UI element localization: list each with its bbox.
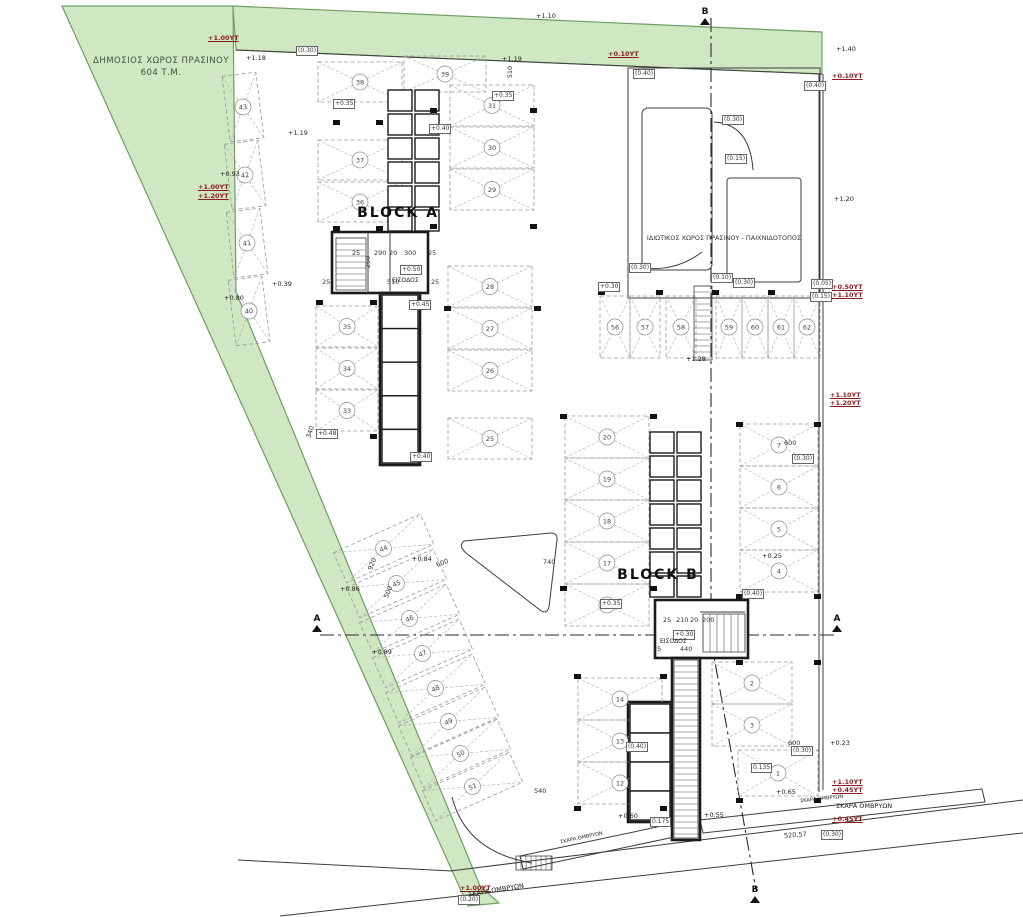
svg-text:13: 13 <box>616 737 624 745</box>
svg-text:57: 57 <box>641 323 649 331</box>
svg-text:1: 1 <box>776 769 780 777</box>
svg-text:61: 61 <box>777 323 785 331</box>
svg-text:7: 7 <box>777 441 781 449</box>
svg-text:20: 20 <box>603 433 611 441</box>
svg-text:17: 17 <box>603 559 611 567</box>
block-a-label: BLOCK A <box>352 205 444 221</box>
svg-text:60: 60 <box>751 323 759 331</box>
parking-stall: 1 <box>738 750 818 796</box>
plan-canvas: 3837363534333931302928272625434241404445… <box>0 0 1023 917</box>
parking-stall: 39 <box>404 56 486 92</box>
parking-stall: 27 <box>448 308 532 349</box>
parking-stall: 2 <box>712 662 792 704</box>
svg-text:14: 14 <box>616 695 624 703</box>
storage-cell-row <box>650 504 701 525</box>
parking-stall: 3 <box>712 704 792 746</box>
stair-ramp-hatch <box>694 286 712 360</box>
storage-cell-row <box>388 114 439 135</box>
public-green-label-line2: 604 Τ.Μ. <box>58 68 264 78</box>
parking-stall: 56 <box>600 296 630 358</box>
svg-text:58: 58 <box>677 323 685 331</box>
svg-text:31: 31 <box>488 102 496 110</box>
svg-text:6: 6 <box>777 483 781 491</box>
svg-text:59: 59 <box>725 323 733 331</box>
svg-text:38: 38 <box>356 78 364 86</box>
svg-text:16: 16 <box>603 601 611 609</box>
svg-text:37: 37 <box>356 156 364 164</box>
svg-text:4: 4 <box>777 567 781 575</box>
parking-stall: 31 <box>450 85 534 126</box>
plot-boundary <box>236 50 823 792</box>
svg-text:28: 28 <box>486 283 494 291</box>
svg-text:33: 33 <box>343 407 351 415</box>
svg-text:41: 41 <box>242 239 251 248</box>
parking-stall: 34 <box>316 348 378 389</box>
storage-cell-row <box>388 162 439 183</box>
parking-stall: 59 <box>716 296 742 358</box>
parking-stall: 26 <box>448 350 532 391</box>
parking-stall: 4 <box>740 550 818 592</box>
svg-text:25: 25 <box>486 435 494 443</box>
svg-text:56: 56 <box>611 323 619 331</box>
parking-stall: 28 <box>448 266 532 307</box>
site-plan: 3837363534333931302928272625434241404445… <box>0 0 1023 917</box>
parking-stall: 18 <box>565 500 649 542</box>
storm-grate-label: ΣΚΑΡΑ ΟΜΒΡΥΩΝ <box>836 802 892 810</box>
svg-text:29: 29 <box>488 186 496 194</box>
storage-cell-row <box>388 90 439 111</box>
svg-text:12: 12 <box>616 779 624 787</box>
parking-stall: 16 <box>565 584 649 626</box>
svg-text:42: 42 <box>240 171 249 180</box>
block-b-entrance-label: ΕΙΣΟΔΟΣ <box>660 638 687 645</box>
public-green-label-line1: ΔΗΜΟΣΙΟΣ ΧΩΡΟΣ ΠΡΑΣΙΝΟΥ <box>58 56 264 66</box>
parking-stall: 57 <box>630 296 660 358</box>
svg-text:40: 40 <box>244 307 253 316</box>
storage-cell-row <box>650 456 701 477</box>
parking-stall: 25 <box>448 418 532 459</box>
traffic-island <box>461 533 557 612</box>
storage-cell-row <box>388 186 439 207</box>
parking-stall: 61 <box>768 296 794 358</box>
svg-text:19: 19 <box>603 475 611 483</box>
parking-stall: 29 <box>450 169 534 210</box>
parking-stall: 7 <box>740 424 818 466</box>
parking-stall: 33 <box>316 390 378 431</box>
public-green-area <box>62 6 822 906</box>
private-green-label: ΙΔΙΩΤΙΚΟΣ ΧΩΡΟΣ ΠΡΑΣΙΝΟΥ - ΠΑΙΧΝΙΔΟΤΟΠΟΣ <box>630 234 818 242</box>
svg-text:34: 34 <box>343 365 351 373</box>
svg-text:3: 3 <box>750 721 754 729</box>
svg-text:2: 2 <box>750 679 754 687</box>
storage-cell-row <box>388 138 439 159</box>
storage-cell-row <box>650 528 701 549</box>
svg-text:62: 62 <box>803 323 811 331</box>
parking-stall: 30 <box>450 127 534 168</box>
parking-stall: 35 <box>316 306 378 347</box>
svg-text:30: 30 <box>488 144 496 152</box>
playground-area <box>628 68 820 298</box>
parking-stall: 60 <box>742 296 768 358</box>
parking-stall: 62 <box>794 296 820 358</box>
svg-text:35: 35 <box>343 323 351 331</box>
svg-text:26: 26 <box>486 367 494 375</box>
parking-stall: 6 <box>740 466 818 508</box>
parking-stall: 20 <box>565 416 649 458</box>
parking-stall: 58 <box>666 296 696 358</box>
block-b-label: BLOCK B <box>612 567 704 583</box>
parking-stall: 19 <box>565 458 649 500</box>
svg-text:43: 43 <box>238 103 247 112</box>
storage-cell-row <box>650 432 701 453</box>
svg-text:18: 18 <box>603 517 611 525</box>
svg-text:5: 5 <box>777 525 781 533</box>
storage-cell-row <box>650 480 701 501</box>
block-a-entrance-label: ΕΙΣΟΔΟΣ <box>392 277 419 284</box>
parking-stall: 5 <box>740 508 818 550</box>
svg-text:39: 39 <box>441 70 449 78</box>
svg-text:27: 27 <box>486 325 494 333</box>
